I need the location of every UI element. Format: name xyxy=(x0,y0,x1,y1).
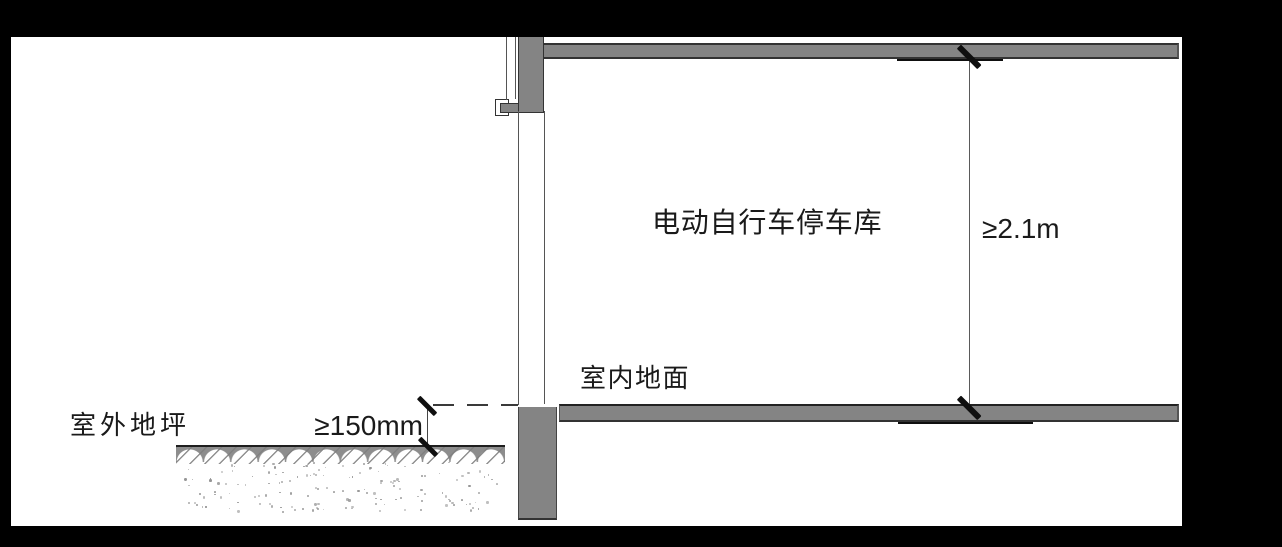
floor-raise-dimension-label: ≥150mm xyxy=(290,410,423,442)
opening-face-line-outer xyxy=(518,111,519,405)
earth-hatch-diagonals xyxy=(176,447,505,464)
indoor-floor-slab xyxy=(559,404,1179,422)
floor-level-line xyxy=(898,422,1033,425)
section-drawing: 电动自行车停车库 ≥2.1m 室内地面 室外地坪 ≥150mm xyxy=(0,0,1282,547)
indoor-floor-label: 室内地面 xyxy=(580,362,690,394)
ceiling-slab xyxy=(544,43,1179,59)
foundation-wall xyxy=(518,407,557,520)
wall-finish-line-inner xyxy=(515,37,516,99)
height-dimension-line xyxy=(969,60,970,404)
wall-finish-line-outer xyxy=(506,37,507,100)
clear-height-dimension-label: ≥2.1m xyxy=(982,212,1060,246)
soil-stipple-pattern xyxy=(180,462,502,514)
wall-above-opening xyxy=(518,37,544,111)
room-label: 电动自行车停车库 xyxy=(652,206,882,240)
opening-face-line-inner xyxy=(544,111,545,404)
ceiling-level-line xyxy=(897,59,1003,61)
floor-level-dashed-line xyxy=(433,404,518,406)
outdoor-ground-label: 室外地坪 xyxy=(70,409,190,441)
